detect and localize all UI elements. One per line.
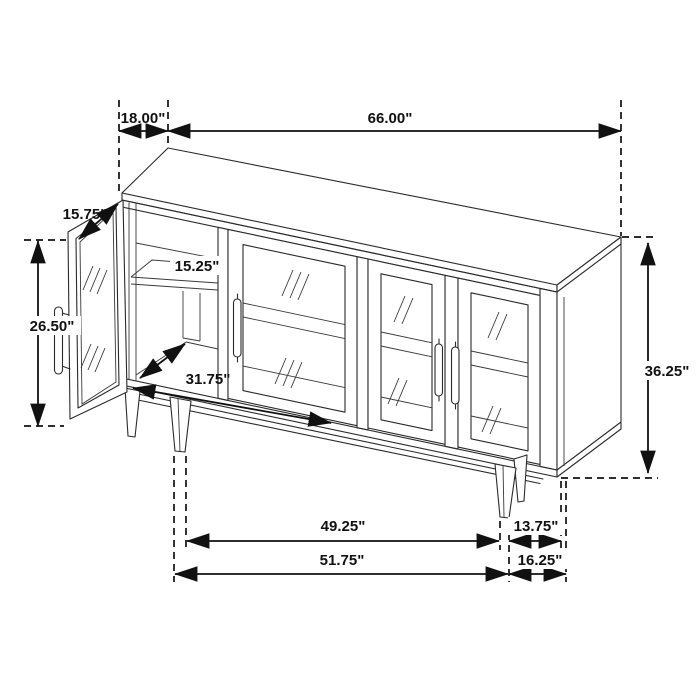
cabinet-drawing	[55, 148, 622, 518]
stile-center	[357, 257, 368, 430]
door-handle	[435, 339, 443, 401]
dim-label-door-width: 15.75"	[63, 206, 108, 223]
door-handle	[234, 294, 242, 362]
dim-label-leg-span-inner: 49.25"	[321, 518, 366, 535]
back-right-leg	[514, 455, 527, 502]
dim-label-interior-width: 31.75"	[186, 371, 231, 388]
glass-door-3	[368, 259, 445, 444]
dim-label-overall-height: 36.25"	[645, 363, 690, 380]
glass-door-4	[452, 278, 541, 464]
dim-label-shelf-depth: 15.25"	[175, 258, 220, 275]
door-handle	[452, 342, 460, 409]
front-left-leg	[170, 397, 191, 452]
dim-label-base-side: 16.25"	[518, 552, 563, 569]
back-left-leg	[125, 388, 140, 437]
front-right-leg	[495, 464, 516, 518]
dim-label-door-height: 26.50"	[30, 318, 75, 335]
corner-post	[540, 288, 557, 470]
dim-label-leg-span-outer: 51.75"	[320, 552, 365, 569]
glass-door-2	[228, 229, 357, 425]
dim-label-leg-to-edge: 13.75"	[514, 518, 559, 535]
dim-label-overall-width: 66.00"	[368, 110, 413, 127]
dim-label-top-depth: 18.00"	[121, 110, 166, 127]
diagram-canvas: 18.00" 66.00" 15.75" 26.50" 15.25" 31.75…	[0, 0, 700, 700]
open-glass-door	[55, 200, 128, 419]
furniture-dimension-diagram: 18.00" 66.00" 15.75" 26.50" 15.25" 31.75…	[0, 0, 700, 700]
